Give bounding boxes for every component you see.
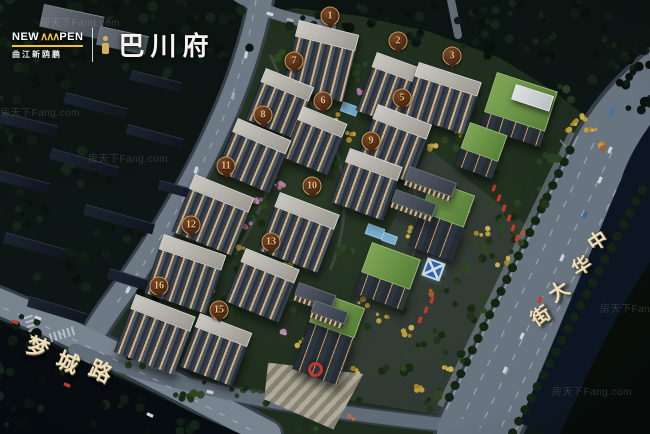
building-marker-5: 5 — [393, 89, 412, 108]
building-marker-8: 8 — [254, 106, 273, 125]
building-marker-number: 12 — [186, 220, 196, 231]
building-marker-10: 10 — [303, 177, 322, 196]
red-arch-landmark — [308, 362, 323, 377]
logo-divider — [92, 28, 93, 62]
building-marker-number: 9 — [369, 136, 374, 147]
brand-right: PEN — [59, 31, 83, 43]
building-marker-number: 10 — [307, 181, 317, 192]
building-marker-2: 2 — [389, 32, 408, 51]
aerial-render: NEW∧∧∧PEN 曲江新鸥鹏 巴川府 12356789101112131516… — [0, 0, 650, 434]
building-marker-7: 7 — [285, 52, 304, 71]
building-marker-number: 1 — [328, 11, 333, 22]
developer-brand: NEW∧∧∧PEN 曲江新鸥鹏 — [12, 30, 83, 60]
watermark: 房天下Fang.com — [0, 104, 80, 119]
building-marker-number: 11 — [221, 161, 230, 172]
building-marker-3: 3 — [443, 47, 462, 66]
building-marker-number: 13 — [266, 237, 276, 248]
brand-mark-icon: ∧∧∧ — [40, 30, 58, 43]
building-marker-11: 11 — [217, 157, 236, 176]
building-marker-number: 2 — [396, 36, 401, 47]
building-marker-number: 7 — [292, 56, 297, 67]
building-marker-13: 13 — [262, 233, 281, 252]
brand-wordmark: NEW∧∧∧PEN — [12, 30, 83, 43]
building-marker-number: 15 — [214, 305, 224, 316]
building-marker-16: 16 — [150, 277, 169, 296]
building-marker-6: 6 — [314, 92, 333, 111]
watermark: 房天下Fang.com — [600, 300, 650, 315]
brand-subtitle: 曲江新鸥鹏 — [12, 49, 83, 60]
building-marker-9: 9 — [362, 132, 381, 151]
building-marker-1: 1 — [321, 7, 340, 26]
building-marker-15: 15 — [210, 301, 229, 320]
brand-left: NEW — [12, 31, 39, 43]
building-marker-number: 3 — [450, 51, 455, 62]
project-name: 巴川府 — [118, 26, 214, 63]
building-marker-number: 6 — [321, 96, 326, 107]
watermark: 房天下Fang.com — [88, 150, 168, 165]
brand-underline — [12, 45, 83, 47]
watermark: 房天下Fang.com — [552, 383, 632, 398]
building-marker-number: 8 — [261, 110, 266, 121]
building-marker-12: 12 — [182, 216, 201, 235]
seal-icon — [102, 36, 109, 54]
project-logo: NEW∧∧∧PEN 曲江新鸥鹏 巴川府 — [12, 26, 214, 63]
building-marker-number: 16 — [154, 281, 164, 292]
building-marker-number: 5 — [400, 93, 405, 104]
